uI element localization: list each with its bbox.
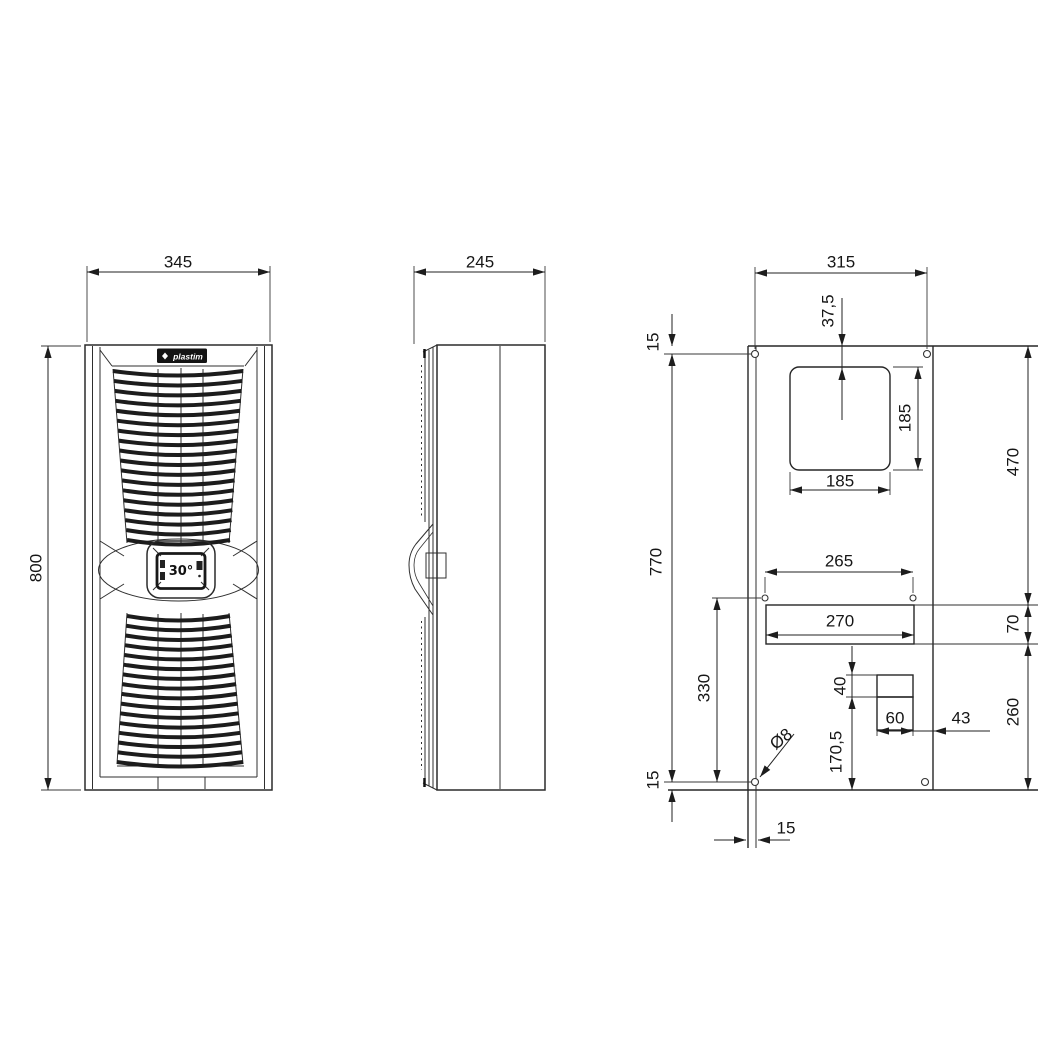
louver-slat [125, 645, 233, 650]
side-outline [437, 345, 545, 790]
louver-slat [115, 391, 242, 396]
dim-label-hole-inset: 15 [777, 819, 796, 838]
dim-label-step-to-edge: 43 [952, 709, 971, 728]
louver-slat [126, 530, 231, 535]
louver-slat [118, 752, 242, 757]
logo-text: plastim [172, 352, 203, 362]
technical-drawing-page: plastim 30° 345 800 [0, 0, 1060, 1060]
dim-label-slot-to-bottom: 260 [1004, 698, 1023, 726]
louver-slat [120, 723, 240, 728]
air-grille-bottom [117, 616, 243, 767]
dim-label-hole-span-v: 770 [647, 548, 666, 576]
dim-label-front-height: 800 [27, 554, 46, 582]
dim-label-step-to-bottom: 170,5 [827, 731, 846, 774]
dim-label-hole-span-h: 315 [827, 253, 855, 272]
control-display: 30° [147, 541, 215, 598]
dim-label-hole-to-bottom: 330 [695, 674, 714, 702]
louver-slat [123, 490, 234, 495]
louver-slat [124, 500, 233, 505]
dim-label-top-to-slot: 470 [1004, 448, 1023, 476]
mounting-cutout-view: 315 37,5 15 185 185 470 70 260 770 15 33… [644, 253, 1039, 849]
louver-slat [119, 733, 240, 738]
side-view-housing [409, 345, 545, 790]
louver-slat [127, 616, 230, 621]
air-grille-top [113, 371, 243, 545]
louver-slat [120, 451, 237, 456]
dim-label-square-height: 185 [896, 404, 915, 432]
mounting-hole [752, 351, 759, 358]
louver-slat [117, 762, 243, 767]
dim-label-bottom-edge-to-hole: 15 [644, 771, 663, 790]
louver-slat [121, 704, 238, 709]
louver-slat [126, 626, 231, 631]
louver-slat [116, 411, 240, 416]
louver-slat [125, 510, 233, 514]
louver-slat [119, 441, 238, 446]
dim-label-depth: 245 [466, 253, 494, 272]
dim-label-slot-hole-span: 265 [825, 552, 853, 571]
dim-label-step-width: 60 [886, 709, 905, 728]
louver-slat [113, 371, 243, 376]
dim-label-front-width: 345 [164, 253, 192, 272]
extension-lines [664, 267, 927, 782]
mounting-hole [752, 779, 759, 786]
louver-slat [122, 694, 237, 699]
front-view: plastim 30° 345 800 [27, 253, 273, 791]
enclosure-cooling-unit-dimension-drawing: plastim 30° 345 800 [0, 0, 1060, 1060]
dim-label-slot-width: 270 [826, 612, 854, 631]
mounting-hole [924, 351, 931, 358]
louver-slat [124, 665, 235, 670]
side-view: 245 [409, 253, 545, 791]
louver-slat [123, 674, 235, 679]
mounting-hole [910, 595, 916, 601]
louver-slat [120, 713, 238, 718]
dim-label-step-height: 40 [831, 677, 850, 696]
louver-slat [122, 684, 236, 689]
louver-slat [121, 470, 235, 475]
louver-slat [126, 635, 232, 640]
dim-label-square-width: 185 [826, 472, 854, 491]
mounting-hole [922, 779, 929, 786]
square-cutout [790, 367, 890, 470]
brand-logo-plate: plastim [157, 349, 207, 364]
louver-slat [122, 480, 235, 485]
louver-slat [114, 381, 242, 386]
dim-label-square-offset: 37,5 [819, 294, 838, 327]
louver-slat [117, 421, 239, 426]
display-temperature-value: 30° [169, 564, 194, 579]
dim-label-top-edge-to-hole: 15 [644, 333, 663, 352]
louver-slat [124, 655, 233, 660]
mounting-hole [762, 595, 768, 601]
display-dot-icon [198, 575, 201, 578]
display-button-icon [160, 572, 165, 580]
louver-slat [118, 743, 241, 748]
step-cutout-upper [877, 675, 913, 697]
dim-label-hole-diameter: Ø8 [766, 725, 796, 754]
louver-slat [115, 401, 240, 406]
louver-slat [125, 520, 231, 525]
panel-edges [668, 346, 1038, 848]
louver-slat [118, 431, 238, 436]
dimension-labels: 315 37,5 15 185 185 470 70 260 770 15 33… [644, 253, 1023, 838]
side-view-dimensions: 245 [414, 253, 545, 345]
display-button-icon [160, 560, 165, 568]
dim-label-slot-height: 70 [1004, 615, 1023, 634]
louver-slat [120, 460, 236, 465]
display-button-icon [197, 561, 203, 570]
